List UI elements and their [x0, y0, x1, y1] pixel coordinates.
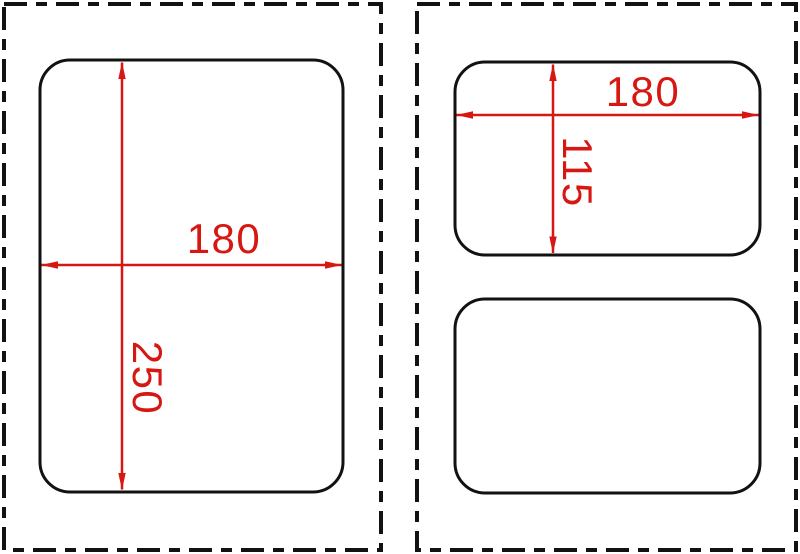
left-panel: 180 250: [4, 4, 381, 550]
left-width-label: 180: [187, 215, 262, 262]
right-panel: 180 115: [417, 4, 796, 550]
left-height-label: 250: [124, 341, 171, 416]
right-top-width-label: 180: [606, 68, 681, 115]
technical-drawing-svg: 180 250 180 115: [0, 0, 800, 554]
right-bottom-shape-outline: [455, 299, 760, 493]
drawing-canvas: 180 250 180 115: [0, 0, 800, 554]
left-shape-outline: [40, 60, 343, 492]
right-top-height-label: 115: [554, 136, 601, 207]
